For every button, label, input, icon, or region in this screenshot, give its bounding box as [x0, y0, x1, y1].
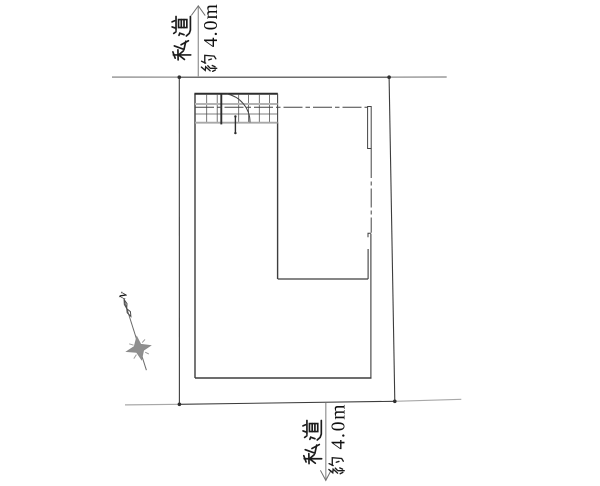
svg-text:4.0m: 4.0m [328, 403, 349, 450]
svg-text:4.0m: 4.0m [201, 3, 222, 47]
